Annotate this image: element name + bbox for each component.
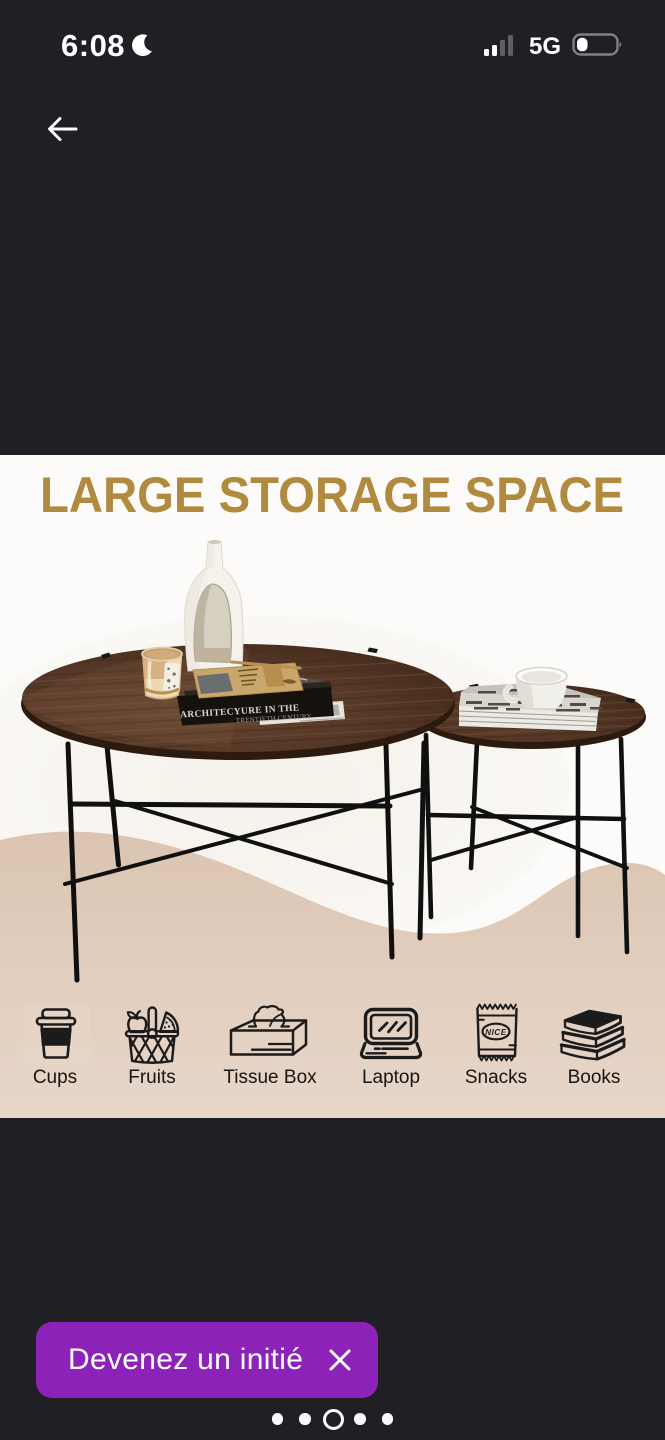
svg-text:Fruits: Fruits — [128, 1067, 176, 1088]
svg-text:NICE: NICE — [485, 1028, 507, 1037]
svg-text:Cups: Cups — [33, 1067, 77, 1088]
svg-text:Books: Books — [568, 1067, 621, 1088]
svg-text:Laptop: Laptop — [362, 1067, 420, 1088]
svg-text:Tissue Box: Tissue Box — [223, 1067, 317, 1088]
svg-text:Snacks: Snacks — [465, 1067, 527, 1088]
svg-text:LARGE STORAGE SPACE: LARGE STORAGE SPACE — [40, 467, 624, 523]
